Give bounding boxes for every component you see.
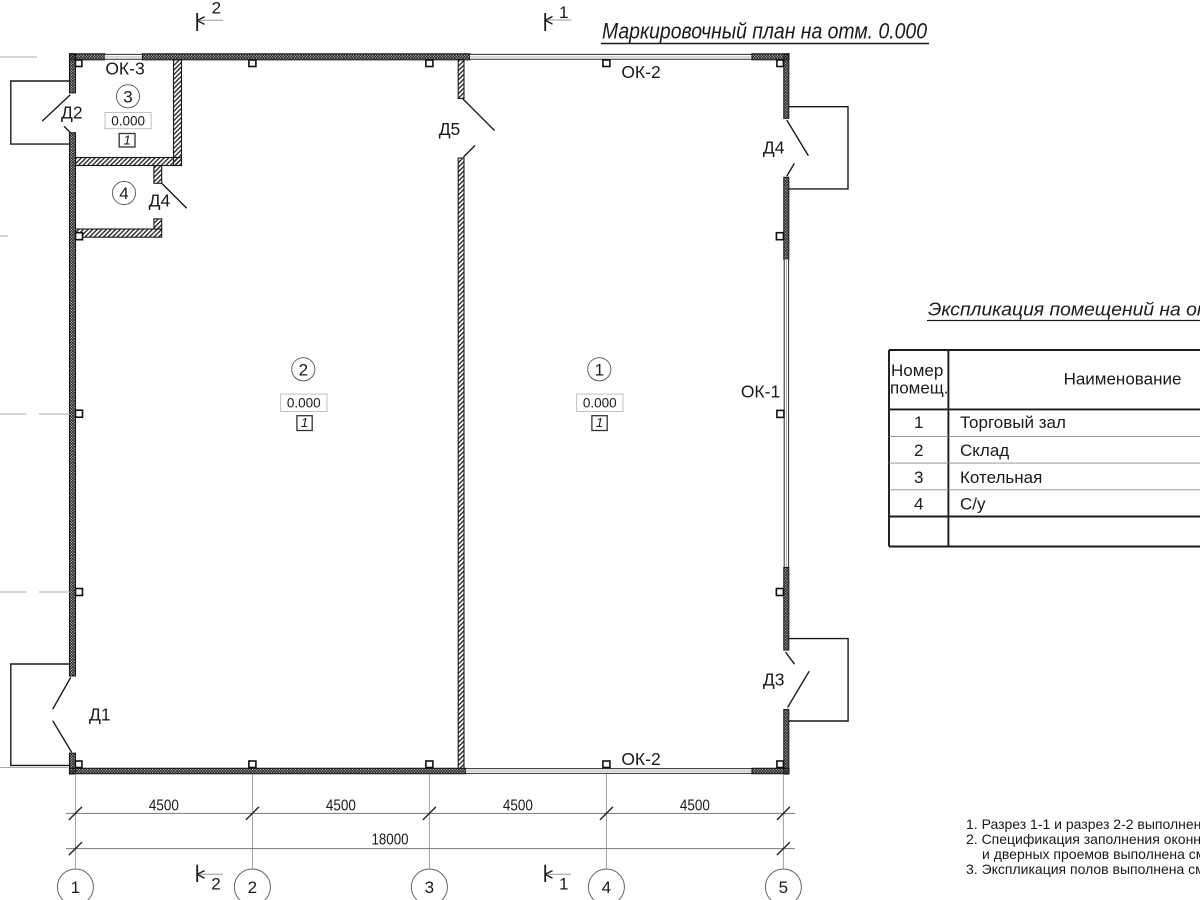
svg-text:3: 3 [425, 878, 434, 897]
svg-text:4: 4 [602, 878, 611, 897]
svg-text:0.000: 0.000 [583, 395, 617, 410]
svg-text:2: 2 [914, 441, 923, 460]
svg-text:Д5: Д5 [439, 119, 461, 139]
svg-text:ОК-2: ОК-2 [621, 62, 660, 82]
svg-text:2: 2 [212, 0, 221, 18]
svg-text:ОК-3: ОК-3 [105, 59, 144, 79]
svg-text:1: 1 [596, 415, 603, 430]
svg-text:Склад: Склад [960, 441, 1009, 460]
svg-text:4500: 4500 [503, 797, 533, 814]
svg-text:3: 3 [123, 87, 132, 106]
svg-text:0.000: 0.000 [287, 395, 321, 410]
svg-text:Экспликация помещений на отм.: Экспликация помещений на отм. 0.000 [928, 300, 1200, 320]
svg-text:ОК-2: ОК-2 [621, 749, 660, 769]
svg-text:4: 4 [119, 184, 128, 203]
svg-text:1: 1 [71, 878, 80, 897]
svg-text:4500: 4500 [149, 797, 179, 814]
svg-text:и дверных проемов выполнена см: и дверных проемов выполнена см. [982, 846, 1200, 862]
svg-text:ОК-1: ОК-1 [741, 382, 780, 402]
svg-text:Наименование: Наименование [1064, 370, 1182, 389]
svg-text:Маркировочный план на отм. 0.0: Маркировочный план на отм. 0.000 [602, 19, 928, 44]
svg-text:Торговый зал: Торговый зал [960, 413, 1066, 432]
svg-text:5: 5 [779, 878, 788, 897]
svg-text:2: 2 [299, 360, 308, 379]
svg-text:4500: 4500 [680, 797, 710, 814]
svg-text:18000: 18000 [372, 831, 409, 848]
svg-text:3: 3 [914, 468, 923, 487]
svg-text:4: 4 [914, 494, 923, 513]
svg-text:Д3: Д3 [763, 669, 785, 689]
svg-text:Д1: Д1 [89, 704, 111, 724]
svg-text:2. Спецификация заполнения око: 2. Спецификация заполнения оконных [966, 831, 1200, 847]
svg-text:Д2: Д2 [61, 103, 83, 123]
svg-text:2: 2 [248, 878, 257, 897]
svg-text:помещ.: помещ. [890, 379, 949, 398]
svg-text:1: 1 [123, 132, 130, 147]
svg-text:Д4: Д4 [763, 138, 785, 158]
svg-text:4500: 4500 [326, 797, 356, 814]
svg-text:Д4: Д4 [149, 191, 171, 211]
svg-text:3. Экспликация полов выполнена: 3. Экспликация полов выполнена см. [966, 861, 1200, 877]
svg-text:1: 1 [559, 3, 568, 22]
svg-text:Номер: Номер [891, 361, 943, 380]
svg-text:1: 1 [559, 874, 568, 893]
svg-text:1: 1 [301, 415, 308, 430]
svg-text:1: 1 [914, 413, 923, 432]
svg-text:1: 1 [595, 360, 604, 379]
svg-text:Котельная: Котельная [960, 468, 1042, 487]
svg-text:С/у: С/у [960, 494, 986, 513]
svg-text:0.000: 0.000 [111, 113, 145, 128]
svg-text:1. Разрез 1-1 и разрез 2-2 вып: 1. Разрез 1-1 и разрез 2-2 выполнены [966, 816, 1200, 832]
svg-text:2: 2 [211, 874, 220, 893]
